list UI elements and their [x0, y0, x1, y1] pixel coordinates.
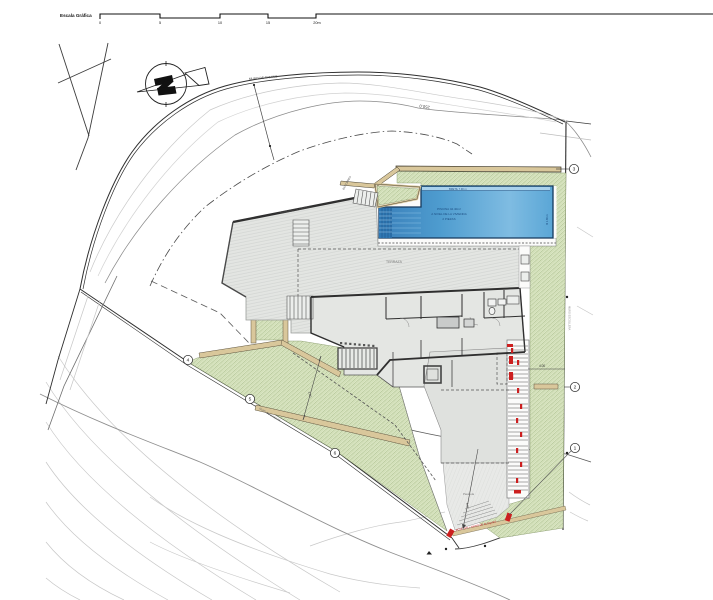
svg-text:BRETIL 7.90 m: BRETIL 7.90 m [449, 187, 467, 191]
svg-text:5: 5 [249, 397, 252, 403]
svg-text:2: 2 [574, 385, 577, 391]
svg-text:1: 1 [574, 446, 577, 452]
svg-text:4: 4 [187, 358, 190, 364]
svg-text:MURO ESCOLLERA: MURO ESCOLLERA [568, 306, 572, 330]
svg-text:2 PIEZAS: 2 PIEZAS [442, 217, 455, 221]
svg-text:TERRAZA: TERRAZA [386, 260, 403, 264]
svg-text:5: 5 [159, 21, 161, 25]
svg-text:Pasarela: Pasarela [463, 492, 474, 496]
svg-text:0: 0 [99, 21, 101, 25]
svg-text:A NIVEL DE LA VIVIENDA: A NIVEL DE LA VIVIENDA [431, 212, 466, 216]
svg-text:M 1.80 m: M 1.80 m [545, 214, 549, 225]
svg-text:20m: 20m [313, 21, 320, 25]
svg-text:15: 15 [266, 21, 270, 25]
svg-text:10: 10 [218, 21, 222, 25]
svg-text:3: 3 [573, 167, 576, 173]
svg-text:6: 6 [334, 451, 337, 457]
svg-text:Escala Gráfica: Escala Gráfica [60, 13, 92, 18]
svg-text:PISCINA 42.40m²: PISCINA 42.40m² [437, 207, 461, 211]
svg-text:4.00: 4.00 [539, 364, 545, 368]
